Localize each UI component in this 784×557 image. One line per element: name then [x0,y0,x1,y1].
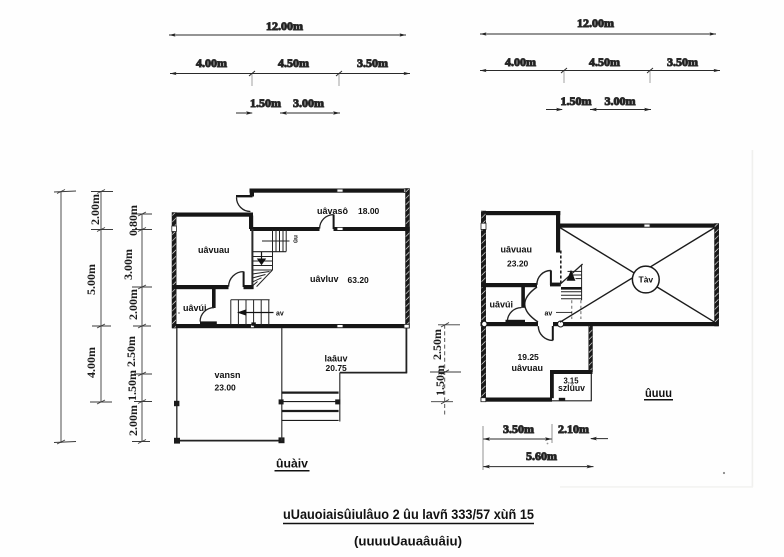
svg-text:uâvúi: uâvúi [490,300,514,310]
svg-text:uâvasô: uâvasô [317,206,349,216]
svg-text:4.50m: 4.50m [589,55,620,69]
svg-text:2.00m: 2.00m [88,194,102,225]
svg-text:av: av [545,311,553,318]
svg-text:ûuuu: ûuuu [645,388,672,400]
svg-text:20.75: 20.75 [326,363,348,373]
svg-text:uâvuau: uâvuau [501,245,533,255]
svg-text:uâvuau: uâvuau [512,363,544,373]
svg-text:12.00m: 12.00m [266,19,303,33]
svg-text:23.20: 23.20 [507,259,529,269]
svg-text:2.10m: 2.10m [558,422,589,436]
svg-text:0.80m: 0.80m [126,205,140,236]
svg-text:3.50m: 3.50m [667,55,698,69]
svg-text:vansn: vansn [215,370,241,380]
svg-text:12.00m: 12.00m [577,16,614,30]
svg-text:3.00m: 3.00m [605,94,636,108]
svg-text:uâvuau: uâvuau [198,245,230,255]
svg-text:4.00m: 4.00m [505,55,536,69]
svg-text:ûu: ûu [293,235,300,243]
svg-text:1.50m: 1.50m [433,365,447,396]
svg-text:2.50m: 2.50m [430,329,444,360]
svg-text:4.00m: 4.00m [84,347,98,378]
svg-text:1.50m: 1.50m [125,370,139,401]
svg-text:uâvúi: uâvúi [183,303,207,313]
svg-text:szlûuv: szlûuv [558,383,585,393]
svg-text:19.25: 19.25 [518,352,540,362]
svg-text:3.50m: 3.50m [503,422,534,436]
svg-text:3.50m: 3.50m [357,56,388,70]
svg-text:23.00: 23.00 [215,383,237,393]
svg-text:3.00m: 3.00m [121,249,135,280]
svg-text:63.20: 63.20 [348,275,370,285]
svg-text:18.00: 18.00 [358,206,380,216]
svg-text:uâvluv: uâvluv [310,274,339,284]
svg-text:uUauoiaisûiulâuo 2 ûu lavñ 333: uUauoiaisûiulâuo 2 ûu lavñ 333/57 xùñ 15 [283,506,534,522]
svg-text:3.00m: 3.00m [293,96,324,110]
svg-text:1.50m: 1.50m [561,94,592,108]
svg-text:ûuàiv: ûuàiv [276,459,309,471]
svg-text:5.00m: 5.00m [84,264,98,295]
svg-text:1.50m: 1.50m [250,96,281,110]
svg-text:2.50m: 2.50m [124,336,138,367]
svg-text:2.00m: 2.00m [126,405,140,436]
svg-text:laâuv: laâuv [325,354,348,364]
svg-text:2.00m: 2.00m [126,289,140,320]
svg-text:4.50m: 4.50m [278,56,309,70]
svg-text:Tàv: Tàv [639,275,654,285]
svg-text:av: av [276,311,284,318]
svg-text:4.00m: 4.00m [196,56,227,70]
svg-text:(uuuuUauaâuâiu): (uuuuUauaâuâiu) [354,534,462,549]
svg-text:5.60m: 5.60m [526,449,557,463]
